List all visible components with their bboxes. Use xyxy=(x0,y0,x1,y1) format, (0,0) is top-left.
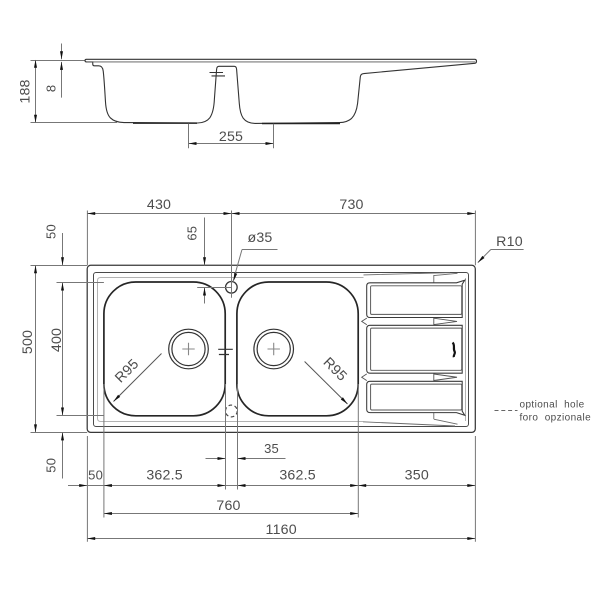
svg-text:362.5: 362.5 xyxy=(146,468,183,484)
svg-text:65: 65 xyxy=(184,226,199,241)
svg-text:50: 50 xyxy=(88,467,103,482)
svg-text:35: 35 xyxy=(264,441,279,456)
svg-text:400: 400 xyxy=(49,328,65,352)
svg-text:500: 500 xyxy=(20,330,36,354)
svg-text:foro opzionale: foro opzionale xyxy=(520,413,592,424)
svg-text:R10: R10 xyxy=(496,234,523,250)
svg-text:255: 255 xyxy=(219,129,243,145)
svg-text:ø35: ø35 xyxy=(247,230,272,246)
svg-text:8: 8 xyxy=(43,85,58,92)
svg-text:362.5: 362.5 xyxy=(279,468,316,484)
svg-text:350: 350 xyxy=(405,468,429,484)
svg-text:50: 50 xyxy=(43,224,58,239)
svg-text:1160: 1160 xyxy=(266,522,297,538)
svg-text:50: 50 xyxy=(44,458,59,473)
svg-text:760: 760 xyxy=(216,498,240,514)
svg-text:430: 430 xyxy=(147,197,171,213)
svg-text:730: 730 xyxy=(339,197,363,213)
svg-text:188: 188 xyxy=(17,79,33,103)
svg-text:optional hole: optional hole xyxy=(520,400,585,411)
